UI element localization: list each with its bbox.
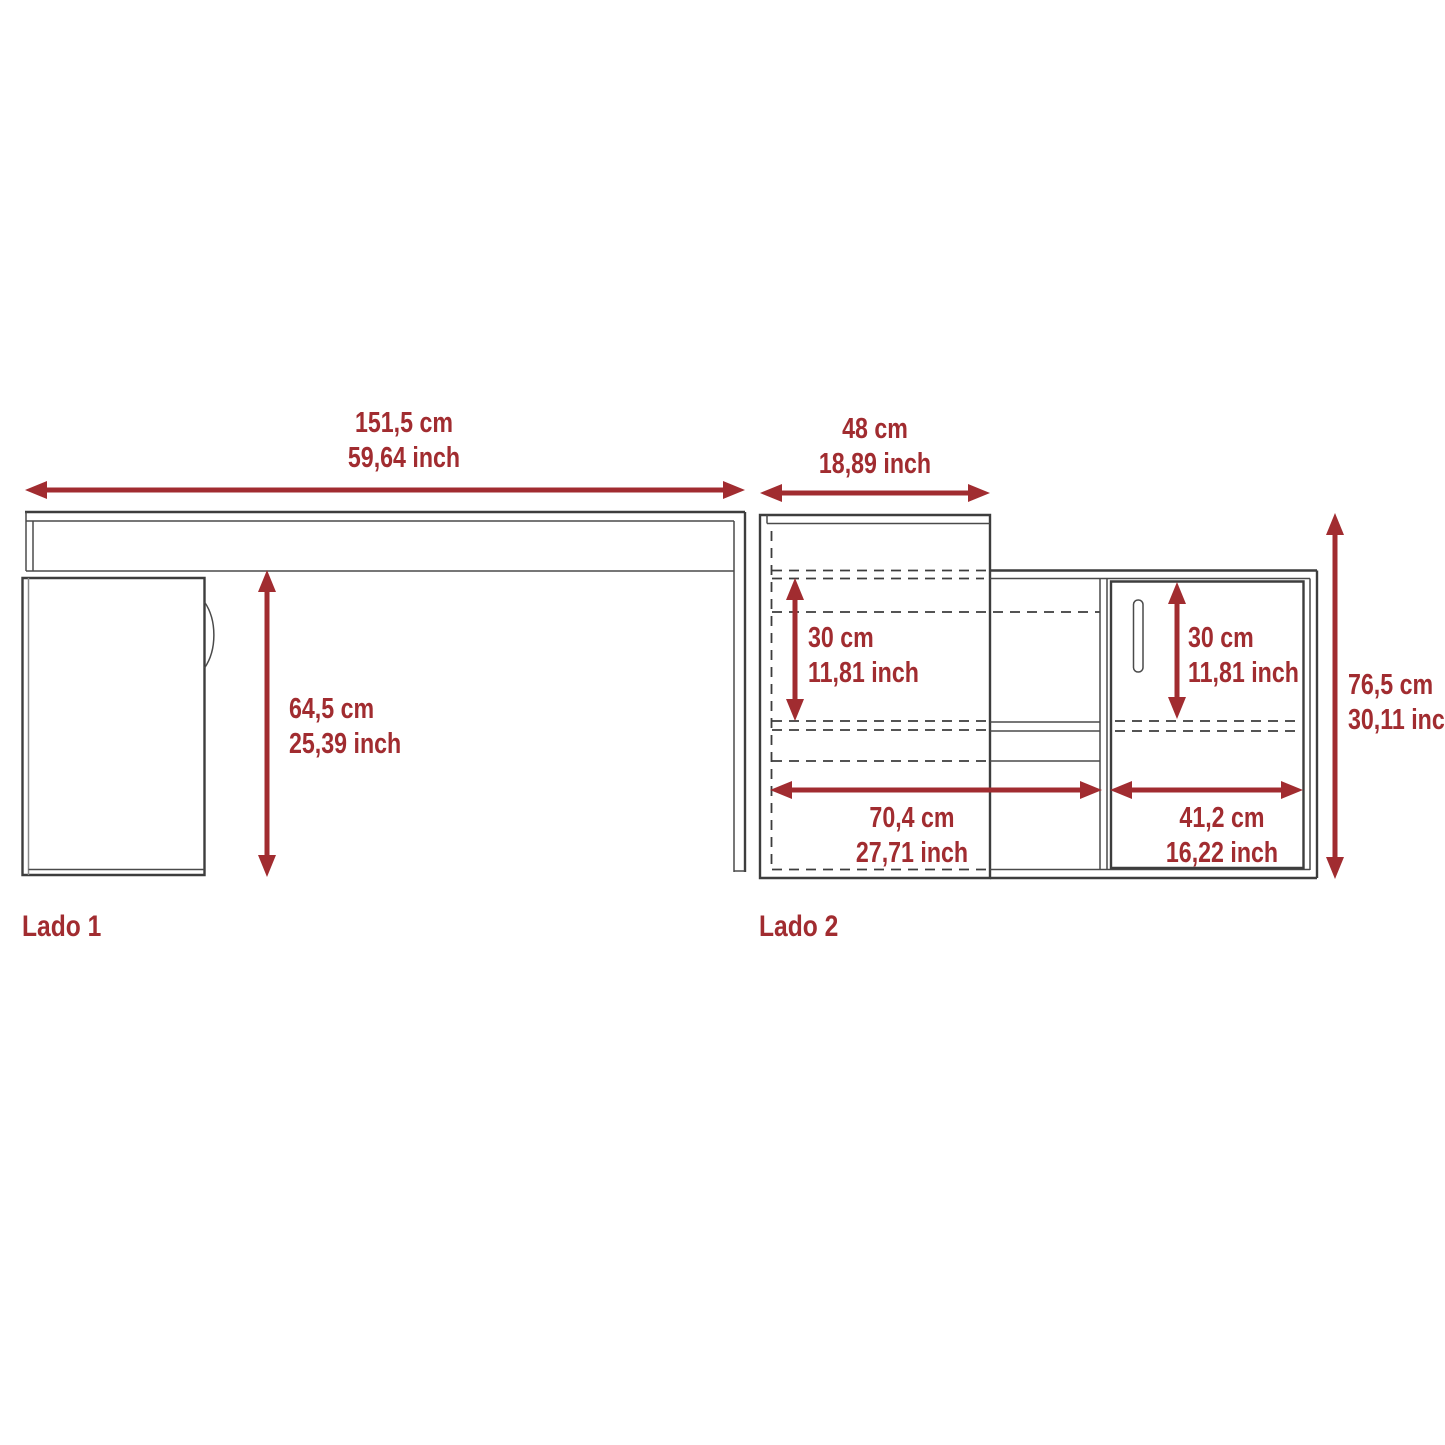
label-side2-total-height-cm: 76,5 cm <box>1348 668 1445 703</box>
side2-door-handle-slot <box>1134 600 1144 672</box>
dimension-diagram: 151,5 cm 59,64 inch 48 cm 18,89 inch 64,… <box>0 0 1445 1445</box>
label-side1-width-inch: 59,64 inch <box>348 441 460 476</box>
label-side2-total-height: 76,5 cm 30,11 inch <box>1348 668 1445 738</box>
label-side2-door-opening-inch: 11,81 inch <box>1188 656 1299 691</box>
label-side2-door-width-inch: 16,22 inch <box>1166 836 1278 871</box>
label-side2-door-opening-cm: 30 cm <box>1188 621 1299 656</box>
dim-arrow-side2-total-height <box>1326 513 1344 879</box>
label-side2-hutch-shelf-inch: 11,81 inch <box>808 656 919 691</box>
dim-arrow-side1-clearance <box>258 570 276 877</box>
label-side2-hutch-width-cm: 48 cm <box>819 412 931 447</box>
label-side2-hutch-width: 48 cm 18,89 inch <box>819 412 931 482</box>
label-side1-clearance-inch: 25,39 inch <box>289 727 401 762</box>
label-side2-left-section-cm: 70,4 cm <box>856 801 968 836</box>
label-side2-hutch-shelf-cm: 30 cm <box>808 621 919 656</box>
label-side1-clearance-cm: 64,5 cm <box>289 692 401 727</box>
dim-arrow-side2-door-opening <box>1168 582 1186 719</box>
side1-door-handle-arc <box>205 602 214 668</box>
label-side2-door-opening: 30 cm 11,81 inch <box>1188 621 1299 691</box>
side1-cabinet-outline <box>23 578 205 875</box>
side2-caption: Lado 2 <box>759 911 838 943</box>
label-side1-width: 151,5 cm 59,64 inch <box>348 406 460 476</box>
dim-arrow-side2-door-width <box>1110 781 1303 799</box>
label-side1-clearance: 64,5 cm 25,39 inch <box>289 692 401 762</box>
label-side2-hutch-width-inch: 18,89 inch <box>819 447 931 482</box>
side1-caption: Lado 1 <box>22 911 101 943</box>
furniture-linework <box>0 0 1445 1445</box>
label-side2-door-width: 41,2 cm 16,22 inch <box>1166 801 1278 871</box>
dim-arrow-side2-hutch-shelf <box>786 578 804 721</box>
label-side2-hutch-shelf: 30 cm 11,81 inch <box>808 621 919 691</box>
label-side2-door-width-cm: 41,2 cm <box>1166 801 1278 836</box>
dim-arrow-side1-width <box>25 481 745 499</box>
label-side2-left-section: 70,4 cm 27,71 inch <box>856 801 968 871</box>
dimension-arrows <box>25 481 1344 879</box>
dim-arrow-side2-hutch-width <box>760 484 990 502</box>
dim-arrow-side2-left-section <box>770 781 1102 799</box>
label-side2-total-height-inch: 30,11 inch <box>1348 703 1445 738</box>
label-side2-left-section-inch: 27,71 inch <box>856 836 968 871</box>
label-side1-width-cm: 151,5 cm <box>348 406 460 441</box>
